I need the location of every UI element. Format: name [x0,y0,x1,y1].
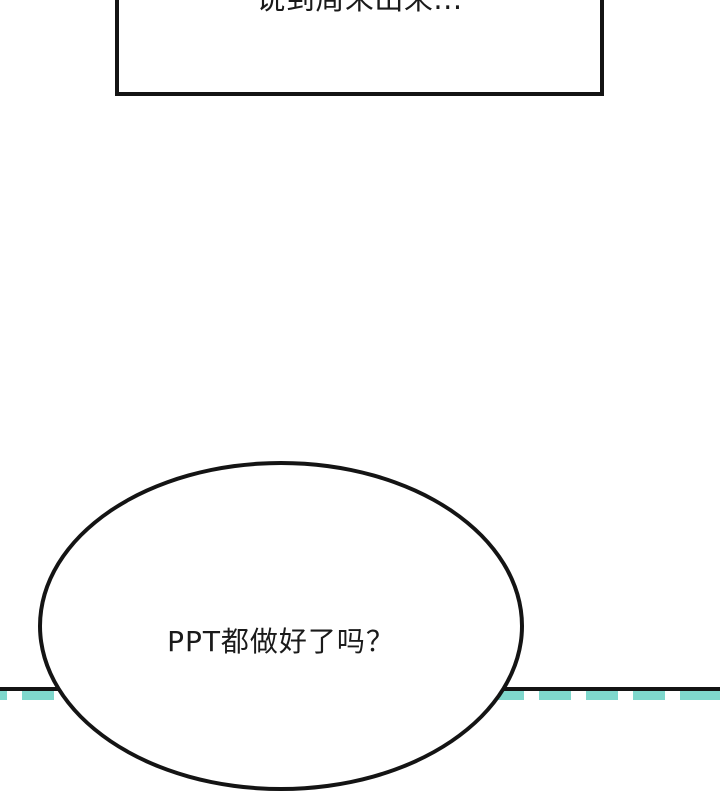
speech-bubble: PPT都做好了吗？ [38,461,524,791]
speech-box-top: 说到周末出来... [115,0,604,96]
speech-bubble-text: PPT都做好了吗？ [42,625,520,659]
speech-box-text: 说到周末出来... [119,0,600,14]
